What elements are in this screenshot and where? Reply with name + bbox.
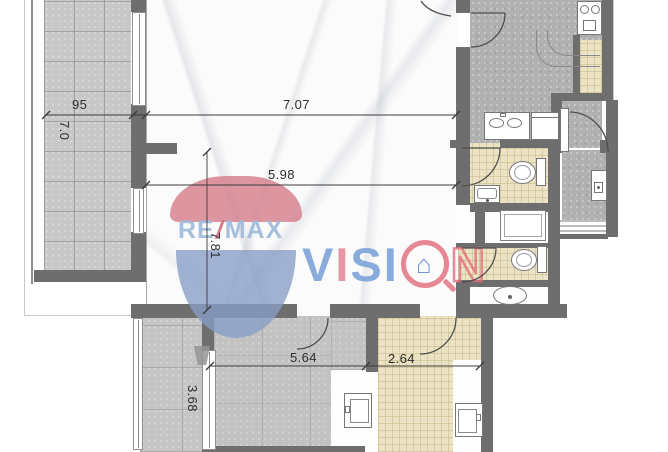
- dimension-ticks: [42, 111, 484, 370]
- dimension-label-hall-width: 5.98: [268, 167, 295, 182]
- entrance-steps: [560, 221, 606, 231]
- floor-plan: RE/MAX V I S I ⌂ N: [0, 0, 668, 452]
- dimension-label-bedroom-width: 5.64: [290, 350, 317, 365]
- plan-linework-overlay: [0, 0, 668, 452]
- dimension-label-balcony-width: 95: [72, 97, 87, 112]
- dimension-label-hall-depth: 7.81: [208, 232, 223, 259]
- dimension-label-side-room-depth: 3.68: [185, 385, 200, 412]
- dimension-label-kitchenette-width: 2.64: [388, 351, 415, 366]
- dimension-label-balcony-depth: 7.0: [57, 121, 72, 140]
- dimension-label-living-width: 7.07: [283, 97, 310, 112]
- dimension-lines: [46, 115, 480, 366]
- door-swing-arcs: [297, 1, 608, 354]
